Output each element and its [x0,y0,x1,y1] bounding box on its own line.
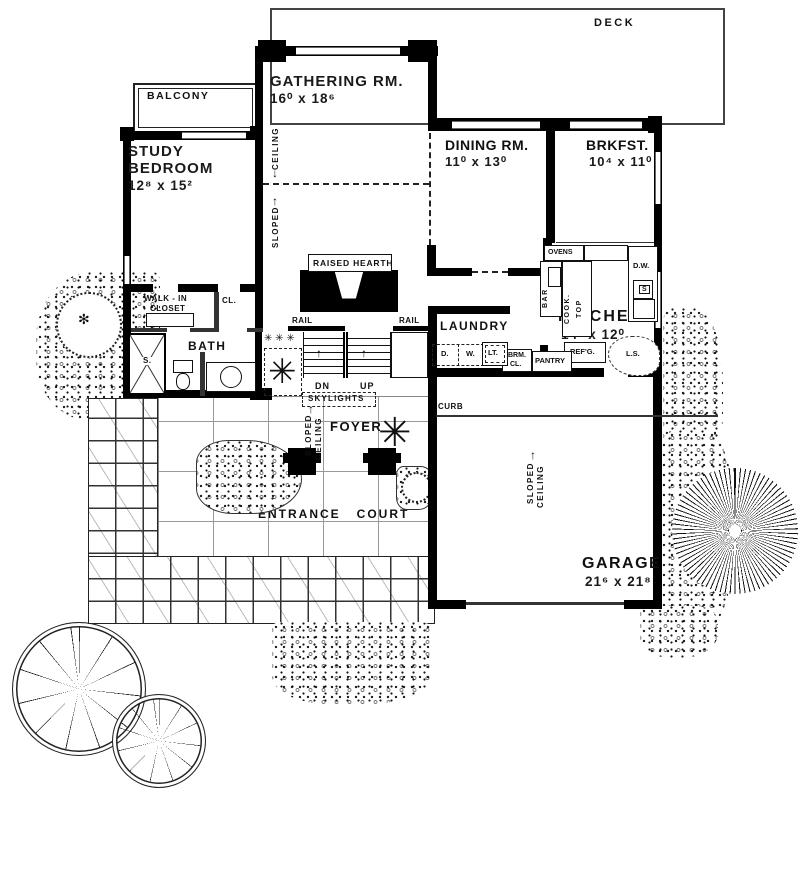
dw-label: D.W. [633,262,649,270]
cl-label: CL. [222,297,236,305]
rail-right-bar [393,326,428,331]
window-brkfst-right [655,152,661,204]
rail-left-label: RAIL [292,317,313,325]
wall-closet-divider [214,292,219,332]
brkfst-dims: 10⁴ x 11⁰ [589,155,652,169]
counter-top-right [584,245,628,261]
brkfst-label: BRKFST. [586,138,649,153]
wall-garage-left [428,377,437,608]
wall-study-bottom-2 [178,284,218,292]
foyer-label: FOYER [330,420,382,434]
wall-closet-bottom-1 [131,328,167,332]
tree-left-center-icon: ✻ [78,312,90,327]
gathering-ceiling-down-arrow-icon: ↓ [272,166,278,180]
bath-sink [220,366,242,388]
foyer-ceiling-vlabel: CEILING [314,416,323,460]
planter-stars-icon: ✳ ✳ ✳ [264,334,295,345]
closet-bench [146,313,194,327]
dining-label: DINING RM. [445,138,529,153]
dining-dims: 11⁰ x 13⁰ [445,155,507,169]
pantry-label: PANTRY [535,357,565,365]
kitchen-counter-top-edge [556,242,654,243]
rail-left-bar [288,326,345,331]
wall-garage-bottom-right [624,600,662,609]
stairs-dn-arrow-icon: ↑ [316,346,322,360]
tree-wheel-small [112,694,206,788]
floor-plan: DECK BALCONY ✻ ENTRANCE COURT ✳ [0,0,800,891]
window-study-left [124,256,130,284]
balcony-label: BALCONY [147,91,209,102]
garage-label: GARAGE [582,556,661,573]
dn-label: DN [315,382,330,391]
toilet-bowl [176,373,190,390]
foyer-sloped-vlabel: SLOPED [304,416,313,456]
stone-path-bottom [88,556,435,624]
shower-label: S. [142,357,153,365]
gathering-sloped-vlabel: SLOPED [271,208,280,248]
cooktop-label-1: COOK. [564,272,571,324]
dining-bottom-dashed-opening [472,271,508,273]
study-dims: 12⁸ x 15² [128,179,193,193]
broom-closet-label-2: CL. [510,361,521,368]
bath-label: BATH [188,340,226,353]
lazy-susan-label: L.S. [626,350,640,358]
stairs-landing [391,332,428,378]
dryer-label: D. [441,350,449,358]
skylights-label: SKYLIGHTS [308,395,365,403]
curb-label: CURB [438,403,463,411]
wall-study-bottom-1 [123,284,153,292]
garage-door-line [466,602,624,605]
deck-outline [270,8,725,125]
kitchen-sink-label: S [639,285,650,294]
gathering-ceiling-vlabel: CEILING [271,128,280,170]
court-planter-shrub [196,440,302,514]
gathering-label: GATHERING RM. [270,74,404,90]
palm-icon: ✳ [268,352,297,392]
laundry-counter-divider [458,344,459,366]
toilet-tank [173,360,193,373]
window-gathering-top [296,47,400,55]
garage-sloped-vlabel: SLOPED [526,462,535,504]
walkin-closet-label-1: WALK - IN [144,295,187,303]
garage-ceiling-vlabel: CEILING [536,462,545,508]
ceiling-break-gathering-right [429,133,431,245]
wall-laundry-top [428,306,510,314]
raised-hearth-label: RAISED HEARTH [313,259,393,268]
stairs-up-arrow-icon: ↑ [361,346,367,360]
study-label-1: STUDY [128,144,184,160]
bar-sink [548,267,561,287]
wall-gathering-left [255,46,263,332]
laundry-label: LAUNDRY [440,320,509,333]
refg-label: REF'G. [570,348,595,356]
garage-sloped-arrow-icon: ↑ [530,448,536,462]
garage-dims: 21⁶ x 21⁸ [585,575,652,589]
wall-gathering-right-upper [428,46,437,131]
deck-label: DECK [594,18,635,30]
kitchen-sink-box-2 [633,299,655,319]
laundry-tub-label: LT. [488,349,498,357]
wall-dining-bottom-1 [428,268,472,276]
wall-closet-bottom-3 [247,328,263,332]
up-label: UP [360,382,375,391]
wall-foyer-left [255,332,262,392]
study-label-2: BEDROOM [128,161,213,177]
window-study-top [182,132,246,139]
rail-right-label: RAIL [399,317,420,325]
stairs-divider [343,332,348,378]
court-column-right-cap [363,453,401,463]
groundcover-below-garage [640,606,718,658]
washer-label: W. [466,350,475,358]
curb-line [436,415,718,417]
groundcover-below-court [272,622,434,704]
tree-starburst [672,468,798,594]
wall-garage-bottom-left [428,600,466,609]
ovens-label: OVENS [548,249,573,256]
broom-closet-label-1: BRM. [508,352,526,359]
wall-dining-brkfst-divider [546,125,555,243]
wall-garage-right [653,377,662,608]
window-brkfst-top [570,121,642,129]
cooktop-label-2: TOP [576,278,583,318]
tree-starburst-core [729,525,741,537]
ceiling-break-gathering [263,183,429,185]
wall-bath-hall-divider [200,352,205,396]
entrance-court-label: ENTRANCE COURT [258,508,409,521]
window-dining-top [452,121,540,129]
gathering-dims: 16⁰ x 18⁶ [270,92,336,106]
stone-path-left [88,398,158,576]
